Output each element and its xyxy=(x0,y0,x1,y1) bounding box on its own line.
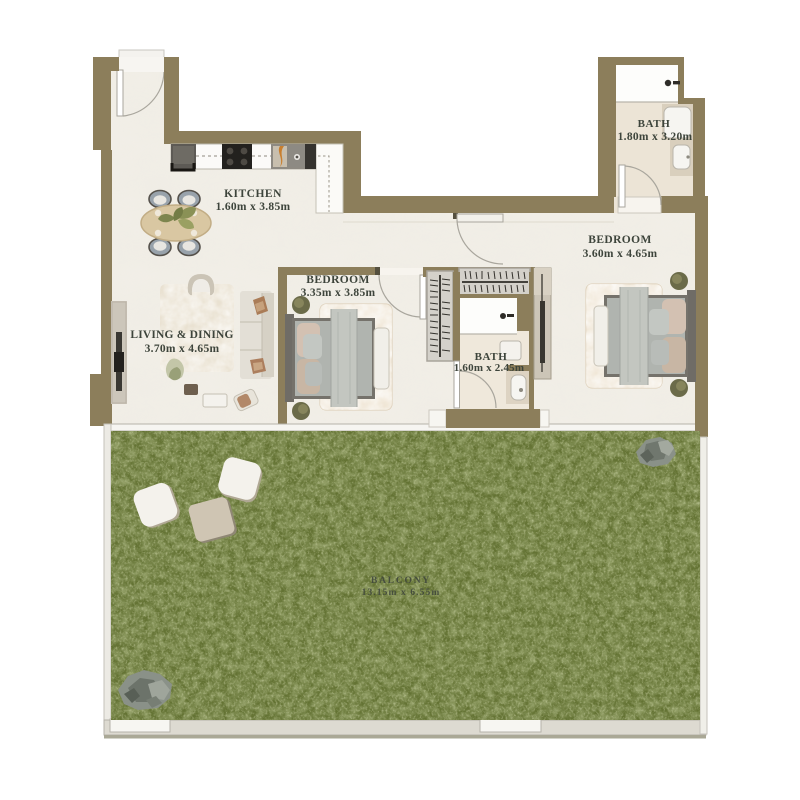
svg-text:BEDROOM: BEDROOM xyxy=(588,234,652,246)
svg-text:BATH: BATH xyxy=(638,118,671,130)
svg-text:1.80m x 3.20m: 1.80m x 3.20m xyxy=(618,131,693,143)
svg-text:3.35m x 3.85m: 3.35m x 3.85m xyxy=(301,287,376,299)
svg-text:1.60m x 2.45m: 1.60m x 2.45m xyxy=(454,362,524,374)
svg-text:LIVING & DINING: LIVING & DINING xyxy=(130,329,233,341)
svg-text:3.60m x 4.65m: 3.60m x 4.65m xyxy=(583,248,658,260)
svg-text:BEDROOM: BEDROOM xyxy=(306,274,370,286)
svg-text:1.60m x 3.85m: 1.60m x 3.85m xyxy=(216,201,291,213)
svg-text:3.70m x 4.65m: 3.70m x 4.65m xyxy=(145,343,220,355)
svg-text:KITCHEN: KITCHEN xyxy=(224,188,282,200)
svg-text:BALCONY: BALCONY xyxy=(371,576,431,586)
svg-text:13.15m x 6.55m: 13.15m x 6.55m xyxy=(362,588,441,598)
